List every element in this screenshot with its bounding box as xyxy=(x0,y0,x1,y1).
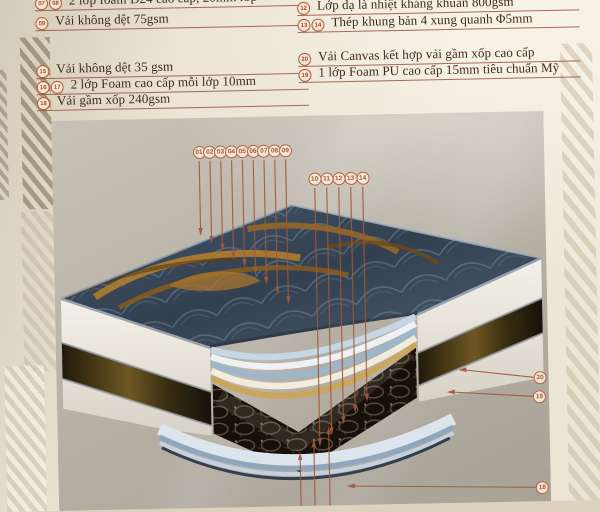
spec-item-text: Thép khung bản 4 xung quanh Φ5mm xyxy=(331,10,532,29)
callout-11: 11 xyxy=(320,172,333,185)
spec-item-text: 2 lớp foam D24 cao cấp, 20mm lớp xyxy=(69,0,257,8)
border-stripe-left-faint xyxy=(21,211,56,372)
spec-item: 09 Vải không dệt 75gsm xyxy=(35,8,307,31)
callout-10: 10 xyxy=(308,173,321,186)
callout-14: 14 xyxy=(356,172,369,185)
spec-list-left: 07 08 2 lớp foam D24 cao cấp, 20mm lớp 0… xyxy=(35,0,313,125)
callout-09: 09 xyxy=(279,144,292,157)
border-stripe-bottom-left xyxy=(4,365,47,512)
spec-item-text: Vải không dệt 75gsm xyxy=(55,11,169,28)
spec-item-text: Vải không dệt 35 gsm xyxy=(56,59,173,76)
callout-19: 19 xyxy=(533,390,546,403)
spec-list-right: 12 Lớp dạ là nhiệt kháng khuẩn 800gsm 13… xyxy=(297,0,585,100)
spec-item-number-badge: 07 xyxy=(35,0,48,10)
spec-item-number-badge: 14 xyxy=(311,18,324,31)
spec-item-number-badge: 09 xyxy=(35,17,48,30)
spec-item-text: Vải gầm xốp 240gsm xyxy=(57,91,171,108)
spec-item-number-badge: 13 xyxy=(297,19,310,32)
spec-item-number-badge: 19 xyxy=(298,69,311,82)
light-reflection xyxy=(51,111,551,511)
callout-20: 20 xyxy=(533,371,546,384)
border-stripe-right xyxy=(560,43,600,501)
border-stripe-left-sliver xyxy=(0,70,9,200)
spec-item-number-badge: 08 xyxy=(49,0,62,10)
callout-12: 12 xyxy=(332,172,345,185)
spec-item-number-badge: 18 xyxy=(37,97,50,110)
callout-18: 18 xyxy=(536,481,549,494)
spec-item-number-badge: 12 xyxy=(297,2,310,15)
diagram-panel xyxy=(51,111,551,511)
callout-13: 13 xyxy=(344,172,357,185)
photographed-poster: 07 08 2 lớp foam D24 cao cấp, 20mm lớp 0… xyxy=(0,0,600,512)
